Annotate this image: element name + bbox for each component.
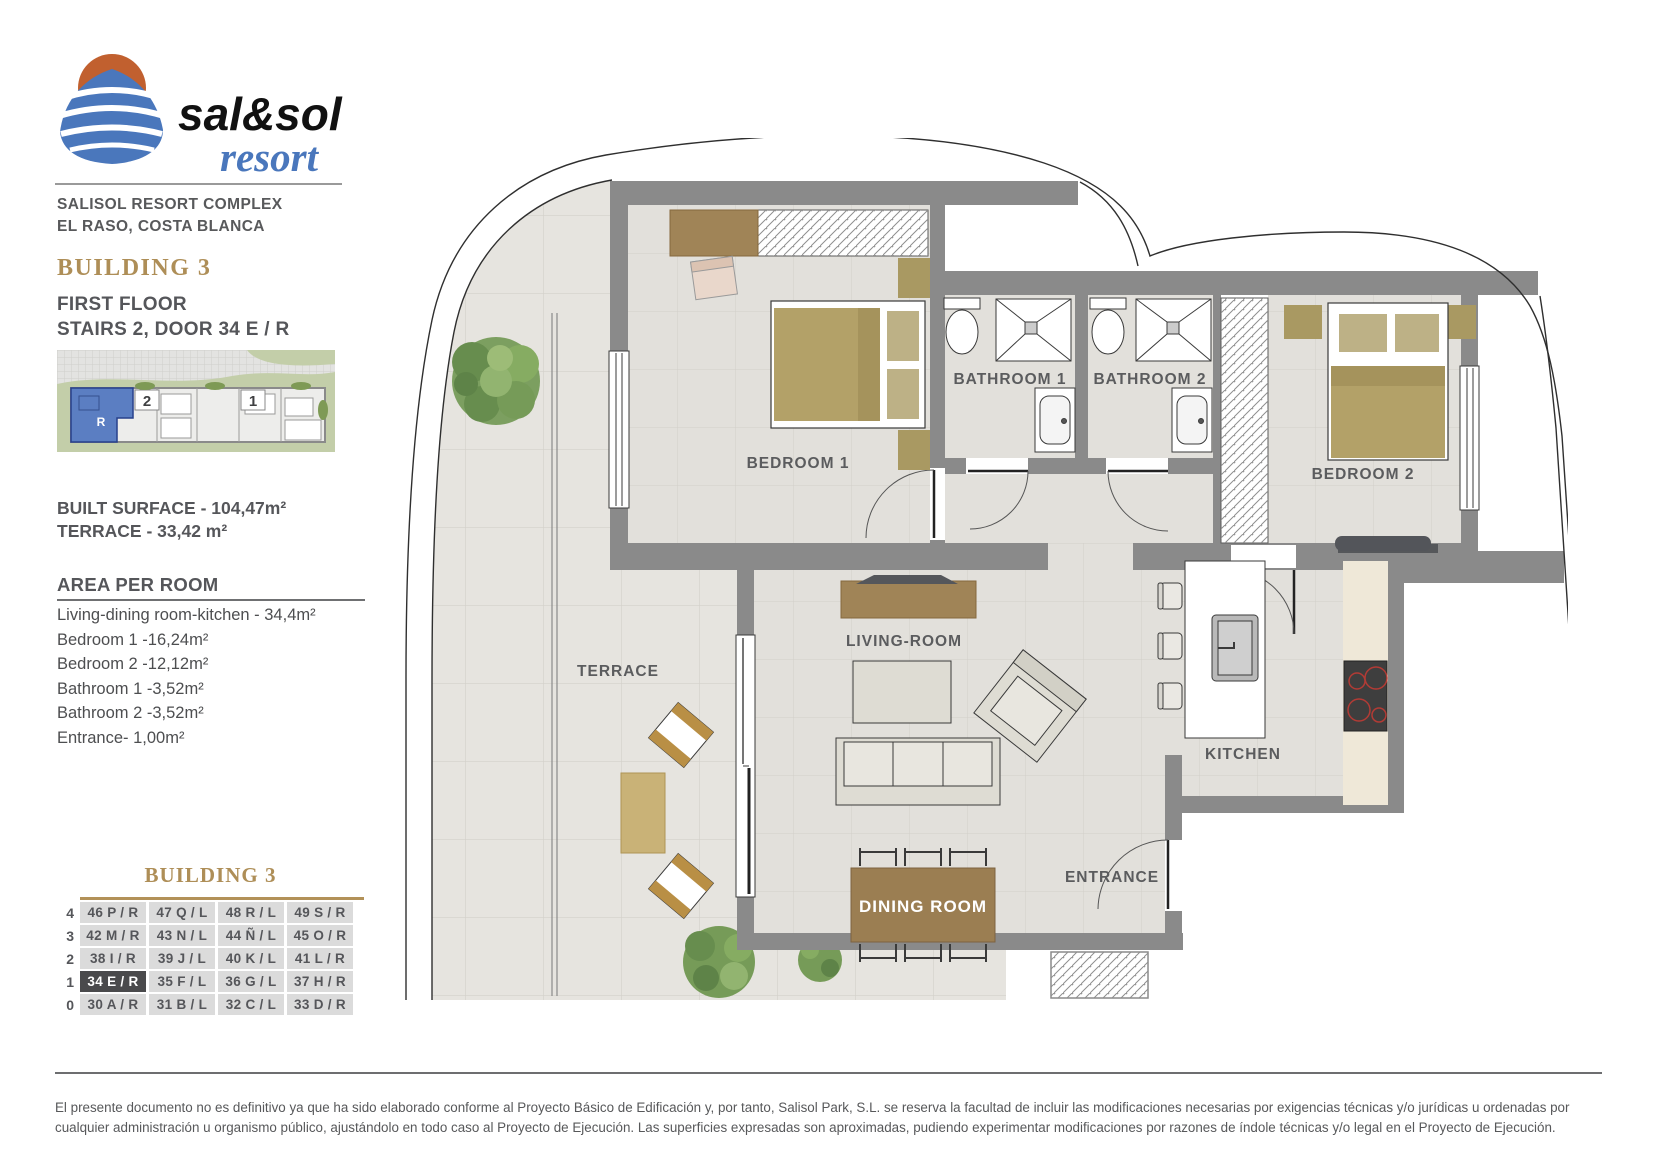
unit-cell: 48 R / L	[218, 902, 284, 923]
tree-large	[452, 337, 540, 425]
stairwell-1-label: 1	[249, 393, 257, 410]
sink2	[1172, 388, 1212, 452]
units-table-row: 030 A / R31 B / L32 C / L33 D / R	[58, 994, 364, 1015]
entrance-steps	[1051, 952, 1148, 998]
bed1	[771, 301, 925, 428]
bedroom2-window	[1460, 366, 1479, 510]
unit-cell: 40 K / L	[218, 948, 284, 969]
area-per-room-title: AREA PER ROOM	[57, 574, 365, 601]
unit-cell: 39 J / L	[149, 948, 215, 969]
label-terrace: TERRACE	[577, 663, 659, 680]
unit-cell: 47 Q / L	[149, 902, 215, 923]
cooktop	[1344, 661, 1387, 731]
logo-text-salsol: sal&sol	[178, 88, 343, 140]
units-table-row: 134 E / R35 F / L36 G / L37 H / R	[58, 971, 364, 992]
unit-cell: 38 I / R	[80, 948, 146, 969]
floor-number: 3	[58, 925, 74, 946]
site-location-diagram: R 2 1	[57, 350, 335, 452]
units-table-gold-bar	[80, 897, 364, 900]
resort-logo: sal&sol resort	[50, 38, 360, 178]
unit-cell: 41 L / R	[287, 948, 353, 969]
logo-text-resort: resort	[220, 134, 320, 178]
terrace-table	[621, 773, 665, 853]
units-table-row: 342 M / R43 N / L44 Ñ / L45 O / R	[58, 925, 364, 946]
legal-disclaimer: El presente documento no es definitivo y…	[55, 1098, 1603, 1137]
floor-number: 0	[58, 994, 74, 1015]
logo-divider	[55, 183, 342, 185]
unit-cell: 44 Ñ / L	[218, 925, 284, 946]
sofa	[836, 738, 1000, 805]
area-item: Entrance- 1,00m²	[57, 726, 387, 751]
unit-cell: 36 G / L	[218, 971, 284, 992]
area-item: Bedroom 1 -16,24m²	[57, 628, 387, 653]
living-glass-door	[736, 635, 755, 897]
floor-number: 2	[58, 948, 74, 969]
unit-cell: 35 F / L	[149, 971, 215, 992]
unit-cell-selected: 34 E / R	[80, 971, 146, 992]
complex-name: SALISOL RESORT COMPLEX	[57, 194, 377, 216]
built-surface: BUILT SURFACE - 104,47m²	[57, 497, 387, 520]
complex-location: EL RASO, COSTA BLANCA	[57, 216, 377, 238]
floor-label: FIRST FLOOR	[57, 292, 387, 317]
area-item: Bedroom 2 -12,12m²	[57, 652, 387, 677]
unit-cell: 45 O / R	[287, 925, 353, 946]
bar-stools	[1158, 583, 1182, 709]
shower1	[996, 299, 1071, 361]
unit-cell: 37 H / R	[287, 971, 353, 992]
extractor-hood	[1335, 536, 1431, 551]
toilet1-tank	[944, 298, 980, 309]
unit-cell: 43 N / L	[149, 925, 215, 946]
nightstand-top	[898, 258, 930, 298]
label-kitchen: KITCHEN	[1205, 746, 1281, 763]
area-item: Living-dining room-kitchen - 34,4m²	[57, 603, 387, 628]
sink1	[1035, 388, 1075, 452]
unit-cell: 49 S / R	[287, 902, 353, 923]
toilet1-bowl	[946, 310, 978, 354]
floor-number: 1	[58, 971, 74, 992]
toilet2-tank	[1090, 298, 1126, 309]
sideboard	[670, 210, 758, 256]
stairs-door-label: STAIRS 2, DOOR 34 E / R	[57, 317, 387, 342]
nightstand-right	[1446, 305, 1476, 339]
units-table-title: BUILDING 3	[58, 863, 363, 888]
label-bedroom1: BEDROOM 1	[747, 455, 850, 472]
area-item: Bathroom 2 -3,52m²	[57, 701, 387, 726]
unit-cell: 32 C / L	[218, 994, 284, 1015]
label-bathroom1: BATHROOM 1	[953, 371, 1066, 388]
unit-identification: FIRST FLOOR STAIRS 2, DOOR 34 E / R	[57, 292, 387, 342]
floor-plan: BEDROOM 1 BATHROOM 1 BATHROOM 2 BEDROOM …	[388, 138, 1568, 1028]
shower2	[1136, 299, 1211, 361]
building-title: BUILDING 3	[57, 255, 211, 282]
tv-sideboard	[841, 581, 976, 618]
area-item: Bathroom 1 -3,52m²	[57, 677, 387, 702]
floor-number: 4	[58, 902, 74, 923]
units-table-row: 446 P / R47 Q / L48 R / L49 S / R	[58, 902, 364, 923]
nightstand-left	[1284, 305, 1322, 339]
area-per-room-list: Living-dining room-kitchen - 34,4m²Bedro…	[57, 603, 387, 750]
complex-block: SALISOL RESORT COMPLEX EL RASO, COSTA BL…	[57, 194, 377, 238]
unit-cell: 46 P / R	[80, 902, 146, 923]
footer-divider	[55, 1072, 1602, 1074]
unit-cell: 33 D / R	[287, 994, 353, 1015]
nightstand-bottom	[898, 430, 930, 470]
toilet2-bowl	[1092, 310, 1124, 354]
label-dining: DINING ROOM	[859, 897, 987, 916]
label-living: LIVING-ROOM	[846, 633, 962, 650]
bed2	[1328, 303, 1448, 460]
coffee-table	[853, 661, 951, 723]
label-bathroom2: BATHROOM 2	[1093, 371, 1206, 388]
unit-cell: 42 M / R	[80, 925, 146, 946]
units-table: 446 P / R47 Q / L48 R / L49 S / R342 M /…	[58, 897, 364, 1017]
unit-letter-r: R	[97, 415, 106, 429]
surface-block: BUILT SURFACE - 104,47m² TERRACE - 33,42…	[57, 497, 387, 543]
terrace-surface: TERRACE - 33,42 m²	[57, 520, 387, 543]
sal-sol-logo-icon: sal&sol resort	[50, 38, 360, 178]
unit-cell: 30 A / R	[80, 994, 146, 1015]
island-sink	[1212, 615, 1258, 681]
desk-chair	[691, 256, 738, 299]
bedroom1-window	[609, 351, 629, 508]
unit-cell: 31 B / L	[149, 994, 215, 1015]
units-table-row: 238 I / R39 J / L40 K / L41 L / R	[58, 948, 364, 969]
label-bedroom2: BEDROOM 2	[1312, 466, 1415, 483]
stairwell-2-label: 2	[143, 393, 151, 410]
label-entrance: ENTRANCE	[1065, 869, 1159, 886]
